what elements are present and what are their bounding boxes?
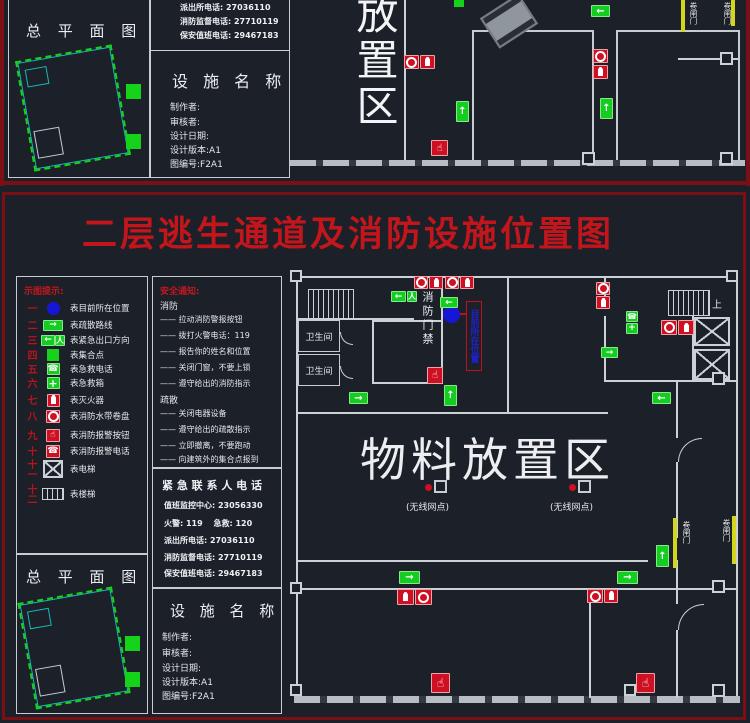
cad-drawing-stage: 总 平 面 图 派出所电话: 27036110 消防监督电话: 27710119… xyxy=(0,0,750,723)
safety-item: —— 拨打火警电话：119 xyxy=(160,330,250,341)
roller-door-label: 卷闸门 xyxy=(722,2,733,25)
legend-num: 十 xyxy=(20,446,36,456)
phone-line: 保安值班电话: 29467183 xyxy=(180,30,279,41)
credit-line: 设计版本:A1 xyxy=(162,675,213,688)
wall xyxy=(404,0,406,162)
room xyxy=(616,30,740,162)
divider xyxy=(151,50,289,51)
legend-num: 九 xyxy=(20,430,36,440)
legend-label: 表灭火器 xyxy=(70,394,104,406)
legend-num: 十一 xyxy=(20,459,36,479)
fire-hose-reel-icon xyxy=(593,49,608,63)
contact-line: 派出所电话: 27036110 xyxy=(164,535,255,546)
phone-line: 派出所电话: 27036110 xyxy=(180,2,271,13)
credit-line: 审核者: xyxy=(162,646,192,659)
credit-line: 审核者: xyxy=(170,115,200,128)
sheet-border xyxy=(0,181,750,185)
escape-route-arrow-icon: ← xyxy=(591,5,610,17)
safety-item: —— 关闭门窗，不要上锁 xyxy=(160,362,251,373)
siteplan-room xyxy=(27,608,52,630)
column xyxy=(582,152,595,165)
legend-row: 十一 表电梯 xyxy=(20,458,96,480)
running-man-icon: 人 xyxy=(55,335,65,346)
facility-title: 设 施 名 称 xyxy=(170,600,279,621)
siteplan-room xyxy=(35,665,65,697)
roller-door-label: 卷闸门 xyxy=(688,2,699,25)
wall xyxy=(290,160,745,166)
fire-alarm-button-icon: ☝ xyxy=(46,429,60,442)
contacts-header: 紧 急 联 系 人 电 话 xyxy=(162,477,262,493)
credit-line: 图编号:F2A1 xyxy=(170,157,223,170)
assembly-point-icon xyxy=(125,636,140,651)
first-aid-box-icon: + xyxy=(47,377,60,389)
sheet1-siteplan-graphic xyxy=(15,44,131,171)
room xyxy=(472,30,594,162)
roller-door xyxy=(681,0,685,32)
fire-hose-reel-icon xyxy=(404,55,419,69)
legend-num: 三 xyxy=(20,335,36,345)
sheet1-siteplan-title: 总 平 面 图 xyxy=(26,20,142,41)
siteplan-title: 总 平 面 图 xyxy=(26,566,142,587)
fire-alarm-button-icon: ☝ xyxy=(431,140,448,156)
assembly-point-icon xyxy=(454,0,464,7)
current-position-icon xyxy=(47,302,60,315)
sheet1-zone-label: 放置区 xyxy=(350,0,398,142)
safety-item: —— 报告你的姓名和位置 xyxy=(160,346,251,357)
fire-section-header: 消防 xyxy=(160,299,178,312)
sheet1-facility-title: 设 施 名 称 xyxy=(172,68,286,92)
stairs-icon xyxy=(42,488,64,500)
escape-route-arrow-icon: ↑ xyxy=(600,98,613,119)
safety-item: —— 拉动消防警报按钮 xyxy=(160,314,243,325)
emergency-exit-direction-icon: ← xyxy=(41,335,55,346)
safety-item: —— 向建筑外的集合点报到 xyxy=(160,454,278,465)
assembly-point-icon xyxy=(125,672,140,687)
siteplan-room xyxy=(33,127,63,159)
safety-item: —— 关闭电器设备 xyxy=(160,408,227,419)
legend-label: 表急救箱 xyxy=(70,377,104,389)
contact-line: 消防监督电话: 27710119 xyxy=(164,552,263,563)
sheet2-title: 二层逃生通道及消防设施位置图 xyxy=(82,206,614,257)
legend-num: 八 xyxy=(20,411,36,421)
legend-label: 表消防报警按钮 xyxy=(70,429,130,441)
fire-extinguisher-icon xyxy=(593,65,608,79)
legend-num: 六 xyxy=(20,378,36,388)
fire-hose-reel-icon xyxy=(46,410,60,423)
legend-num: 十二 xyxy=(20,484,36,504)
column xyxy=(720,152,733,165)
contact-line: 值班监控中心: 23056330 xyxy=(164,500,263,511)
safety-item: —— 遵守给出的消防指示 xyxy=(160,378,251,389)
credit-line: 图编号:F2A1 xyxy=(162,689,215,702)
legend-row: 八 表消防水带卷盘 xyxy=(20,406,130,426)
fire-extinguisher-icon xyxy=(47,394,60,407)
legend-label: 表电梯 xyxy=(70,463,96,475)
legend-label: 表消防报警电话 xyxy=(70,445,130,457)
legend-num: 二 xyxy=(20,320,36,330)
sheet-border xyxy=(0,0,4,186)
legend-header: 示图提示: xyxy=(24,284,64,297)
safety-header: 安全通知: xyxy=(160,284,200,297)
legend-label: 表目前所在位置 xyxy=(70,302,130,314)
escape-route-arrow-icon: ↑ xyxy=(456,101,469,122)
fire-alarm-phone-icon: ☎ xyxy=(46,445,60,458)
legend-row: 十二 表楼梯 xyxy=(20,484,96,504)
legend-num: 七 xyxy=(20,395,36,405)
contact-line: 火警: 119 急救: 120 xyxy=(164,518,252,529)
phone-line: 消防监督电话: 27710119 xyxy=(180,16,279,27)
sheet1: 总 平 面 图 派出所电话: 27036110 消防监督电话: 27710119… xyxy=(0,0,750,186)
credit-line: 设计日期: xyxy=(170,129,209,142)
assembly-point-icon xyxy=(126,134,141,149)
credit-line: 设计版本:A1 xyxy=(170,143,221,156)
credit-line: 制作者: xyxy=(170,100,200,113)
column xyxy=(720,52,733,65)
sheet-border xyxy=(746,0,750,186)
evac-section-header: 疏散 xyxy=(160,393,178,406)
legend-label: 表楼梯 xyxy=(70,488,96,500)
elevator-icon xyxy=(43,460,63,478)
siteplan-room xyxy=(25,66,50,88)
contact-line: 保安值班电话: 29467183 xyxy=(164,568,263,579)
safety-item: —— 遵守给出的疏散指示 xyxy=(160,424,251,435)
safety-item: —— 立即撤离，不要跑动 xyxy=(160,440,251,451)
legend-label: 表消防水带卷盘 xyxy=(70,410,130,422)
credit-line: 设计日期: xyxy=(162,661,201,674)
credit-line: 制作者: xyxy=(162,630,192,643)
assembly-point-icon xyxy=(126,84,141,99)
legend-num: 一 xyxy=(20,303,36,313)
escape-route-arrow-icon: → xyxy=(43,320,63,331)
fire-extinguisher-icon xyxy=(420,55,435,69)
siteplan-graphic xyxy=(17,586,130,709)
